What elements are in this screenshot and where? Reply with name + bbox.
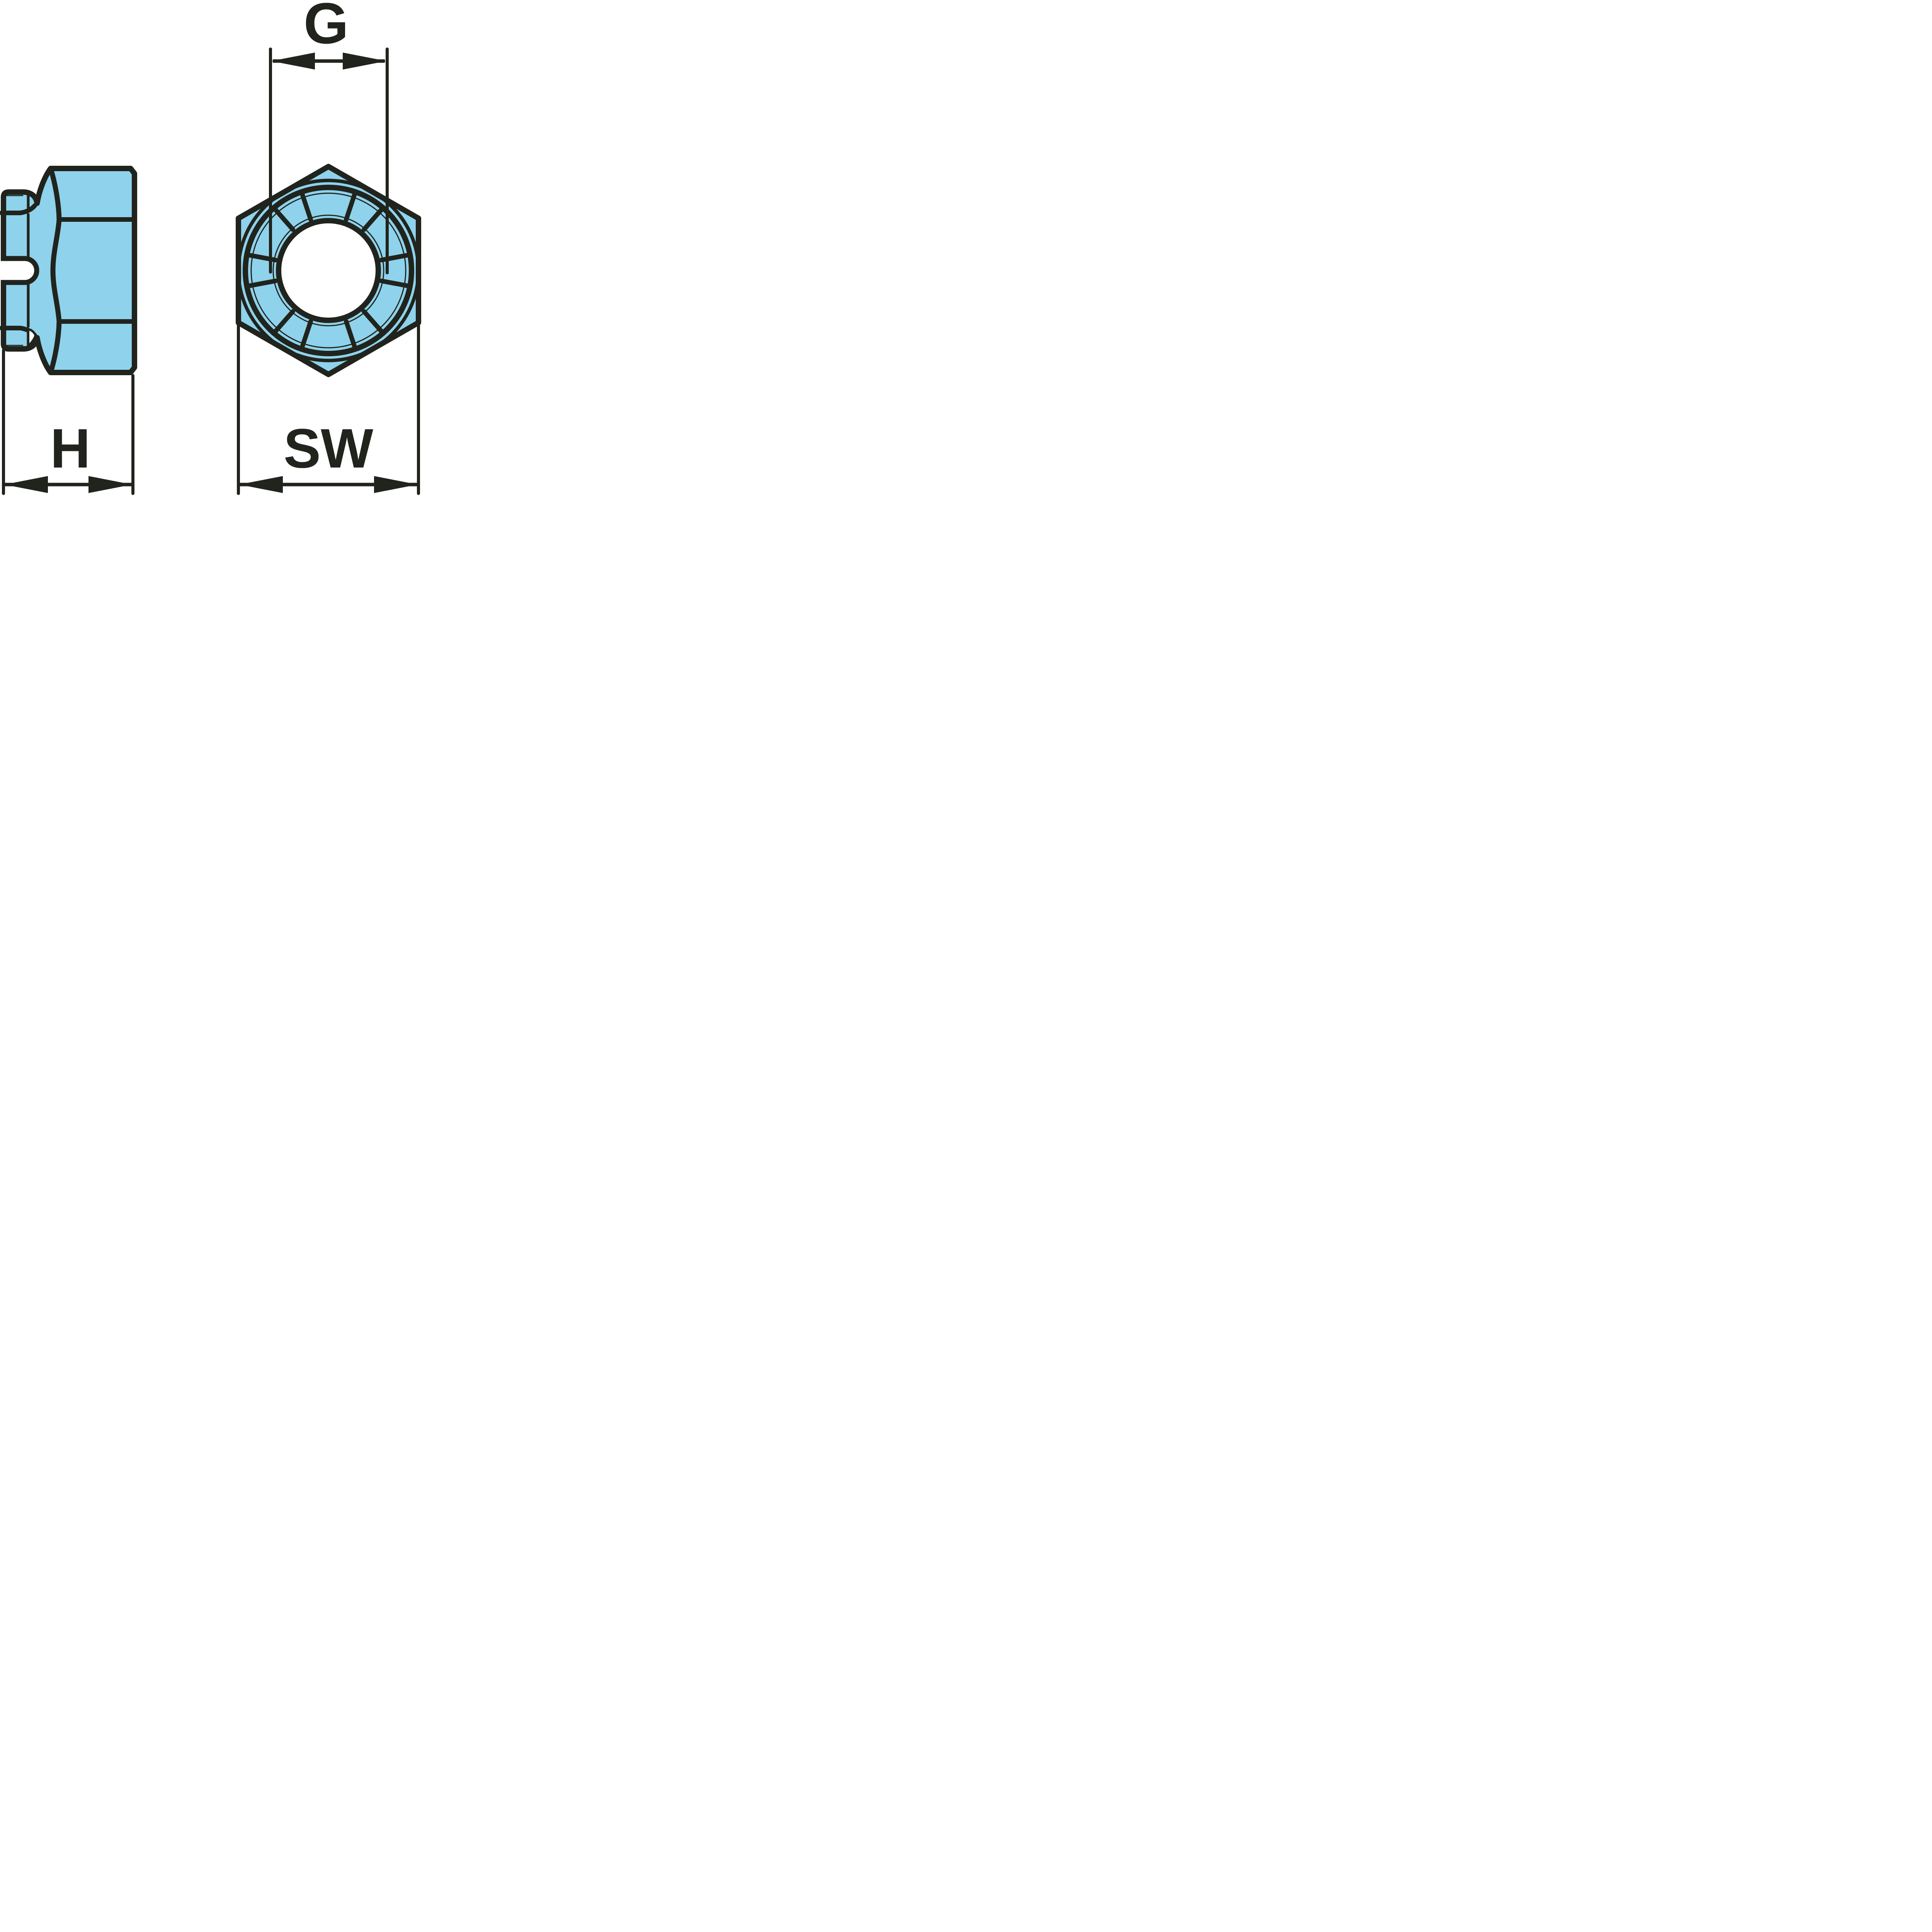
dimension-label-sw: SW [284,417,373,480]
h-arrowhead-right [88,476,132,493]
castle-nut-front-view [238,167,418,374]
castle-nut-side-view [1,168,134,372]
dimension-label-g: G [304,0,349,56]
bore-circle [279,221,378,320]
sw-arrowhead-left [239,476,283,493]
dimension-label-h: H [50,417,90,480]
front-slot-notch [1,259,37,282]
castle-nut-technical-drawing: G H SW [0,0,425,497]
drawing-canvas: G H SW [0,0,425,497]
g-arrowhead-right [343,53,386,70]
sw-arrowhead-right [374,476,418,493]
h-arrowhead-left [4,476,48,493]
